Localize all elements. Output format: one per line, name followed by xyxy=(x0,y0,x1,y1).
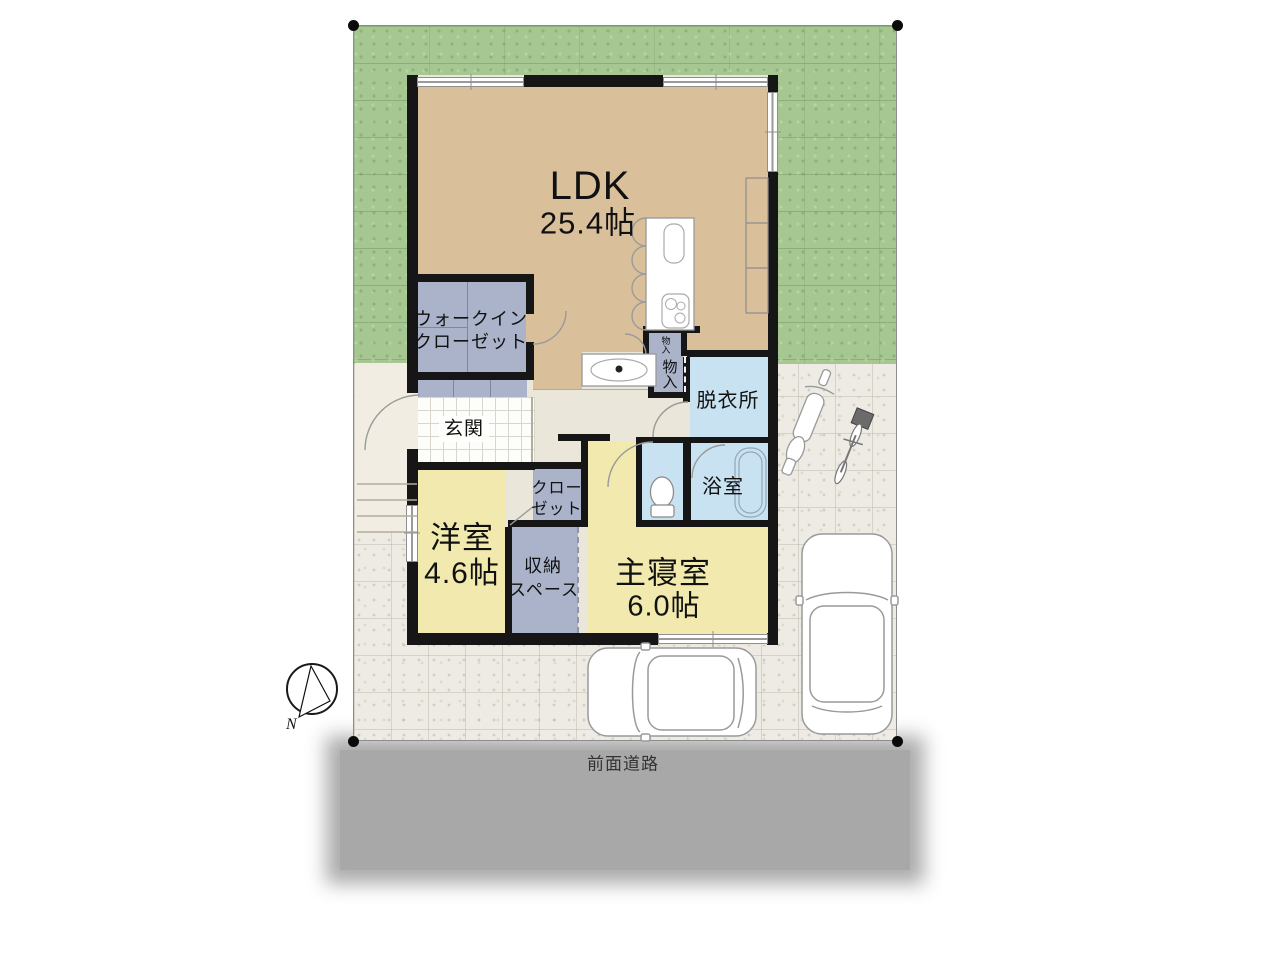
room-closet-label-1: クロー xyxy=(531,481,582,497)
room-western-area: 4.6帖 xyxy=(424,559,500,589)
room-bathroom-label: 浴室 xyxy=(702,477,744,497)
storage-lower-door-dash xyxy=(684,357,686,392)
room-bedroom-area: 6.0帖 xyxy=(627,593,700,622)
storage-space-label-2: スペース xyxy=(509,582,579,599)
storage-upper-label: 物入 xyxy=(661,336,670,354)
wall-bottom-post xyxy=(767,633,778,645)
compass-icon: N xyxy=(285,664,337,733)
room-ldk-floor-ext xyxy=(533,350,582,390)
boundary-marker-top-left xyxy=(348,20,359,31)
storage-space-label-1: 収納 xyxy=(524,557,562,575)
hall-ldk-boundary xyxy=(533,389,651,390)
wall-bottom xyxy=(407,633,658,645)
front-road-label: 前面道路 xyxy=(587,756,659,773)
wall-toilet-bath xyxy=(683,443,691,527)
wall-wic-top xyxy=(410,274,533,282)
wall-wic-bottom xyxy=(417,372,530,380)
window-western xyxy=(406,505,418,562)
wall-storage-upper-left xyxy=(643,330,649,356)
window-top-left xyxy=(417,77,524,87)
room-wic-label-1: ウォークイン xyxy=(414,310,528,328)
genkan-step-edge xyxy=(531,397,533,462)
room-closet-label-2: ゼット xyxy=(531,502,582,518)
entrance-door-opening xyxy=(406,393,418,449)
wall-kitchen-stub xyxy=(643,326,700,333)
wall-bedroom-top xyxy=(558,434,610,441)
room-western-label: 洋室 xyxy=(430,523,494,554)
wall-top-mid xyxy=(524,75,663,87)
wall-western-top xyxy=(410,462,535,470)
window-bedroom xyxy=(658,634,768,644)
room-genkan-label: 玄関 xyxy=(444,420,484,439)
wall-wet-mid xyxy=(636,437,777,443)
room-wic-label-2: クローゼット xyxy=(414,333,528,351)
storage-lower-label: 物入 xyxy=(662,359,677,389)
dressing-door-opening xyxy=(683,402,690,437)
room-ldk-label: LDK xyxy=(550,166,631,206)
wall-closet-top xyxy=(526,462,588,469)
shoe-cabinet xyxy=(417,379,527,398)
room-dressing-label: 脱衣所 xyxy=(697,391,760,411)
window-right xyxy=(767,92,778,172)
room-bedroom-floor-upper xyxy=(588,441,636,527)
wall-toilet-left xyxy=(636,443,642,527)
room-bedroom-label: 主寝室 xyxy=(615,558,711,589)
wall-dressing-top xyxy=(687,350,777,357)
boundary-marker-top-right xyxy=(892,20,903,31)
wall-wet-bottom xyxy=(636,520,777,527)
compass-north-label: N xyxy=(285,716,298,733)
wall-wic-right-a xyxy=(526,274,534,314)
floor-plan-canvas: N LDK 25.4帖 ウォークイン クローゼット 玄関 物入 物入 脱衣所 浴… xyxy=(0,0,1280,960)
wall-closet-bottom xyxy=(508,520,588,527)
room-ldk-area: 25.4帖 xyxy=(540,208,636,239)
room-toilet-floor xyxy=(642,443,683,520)
window-top-right xyxy=(663,77,768,87)
boundary-marker-bottom-left xyxy=(348,736,359,747)
boundary-marker-bottom-right xyxy=(892,736,903,747)
